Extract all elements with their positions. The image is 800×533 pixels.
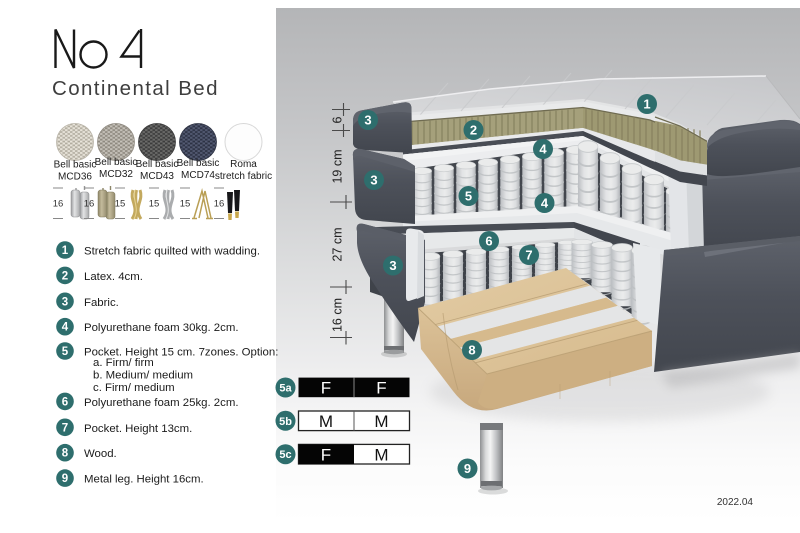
svg-text:3: 3 [389,258,396,273]
svg-text:1: 1 [62,245,69,257]
svg-text:Continental Bed: Continental Bed [52,77,219,100]
svg-text:a. Firm/ firm: a. Firm/ firm [93,357,154,369]
svg-text:3: 3 [62,296,68,308]
svg-text:Metal leg. Height 16cm.: Metal leg. Height 16cm. [84,474,204,486]
svg-text:F: F [376,379,386,398]
svg-text:7: 7 [525,248,532,263]
svg-text:MCD36: MCD36 [58,172,92,183]
svg-text:16 cm: 16 cm [331,298,345,332]
svg-text:M: M [374,445,388,464]
svg-text:4: 4 [541,196,549,211]
svg-text:M: M [374,412,388,431]
svg-text:27 cm: 27 cm [331,227,345,261]
svg-text:2: 2 [470,123,477,138]
svg-text:Bell basic: Bell basic [54,160,97,171]
svg-text:Bell basic: Bell basic [95,157,138,168]
svg-text:MCD74: MCD74 [181,170,215,181]
svg-text:7: 7 [62,422,68,434]
svg-text:15: 15 [180,199,191,210]
svg-text:16: 16 [214,199,225,210]
svg-text:F: F [321,379,331,398]
svg-text:5a: 5a [279,383,292,395]
svg-text:16: 16 [53,199,64,210]
svg-text:MCD32: MCD32 [99,169,133,180]
svg-text:M: M [319,412,333,431]
svg-text:16: 16 [84,199,95,210]
svg-text:2022.04: 2022.04 [717,497,754,508]
svg-text:Bell basic: Bell basic [136,159,179,170]
svg-text:b. Medium/ medium: b. Medium/ medium [93,370,193,382]
svg-text:Latex. 4cm.: Latex. 4cm. [84,271,143,283]
svg-text:Wood.: Wood. [84,448,117,460]
svg-text:Roma: Roma [230,159,257,170]
svg-text:8: 8 [468,343,475,358]
svg-text:1: 1 [643,97,650,112]
svg-text:3: 3 [364,113,371,128]
svg-text:stretch fabric: stretch fabric [215,171,272,182]
svg-text:Fabric.: Fabric. [84,297,119,309]
svg-text:c. Firm/ medium: c. Firm/ medium [93,382,175,394]
svg-text:Stretch fabric quilted with wa: Stretch fabric quilted with wadding. [84,246,260,258]
svg-text:5c: 5c [279,449,291,461]
svg-text:9: 9 [464,461,471,476]
svg-text:19 cm: 19 cm [331,149,345,183]
svg-text:MCD43: MCD43 [140,171,174,182]
svg-text:6: 6 [331,116,345,123]
svg-text:5: 5 [465,189,472,204]
svg-text:F: F [321,445,331,464]
svg-text:5: 5 [62,346,69,358]
svg-text:5b: 5b [279,416,292,428]
svg-text:15: 15 [149,199,160,210]
svg-text:2: 2 [62,270,68,282]
svg-text:6: 6 [485,234,492,249]
svg-text:Polyurethane foam 25kg. 2cm.: Polyurethane foam 25kg. 2cm. [84,397,239,409]
svg-text:4: 4 [62,322,69,334]
svg-text:6: 6 [62,396,68,408]
svg-text:8: 8 [62,448,69,460]
svg-text:Polyurethane foam 30kg. 2cm.: Polyurethane foam 30kg. 2cm. [84,322,239,334]
svg-text:4: 4 [539,142,547,157]
svg-text:9: 9 [62,473,68,485]
svg-text:3: 3 [370,173,377,188]
svg-text:15: 15 [115,199,126,210]
svg-text:Bell basic: Bell basic [177,158,220,169]
svg-text:Pocket. Height 13cm.: Pocket. Height 13cm. [84,423,192,435]
